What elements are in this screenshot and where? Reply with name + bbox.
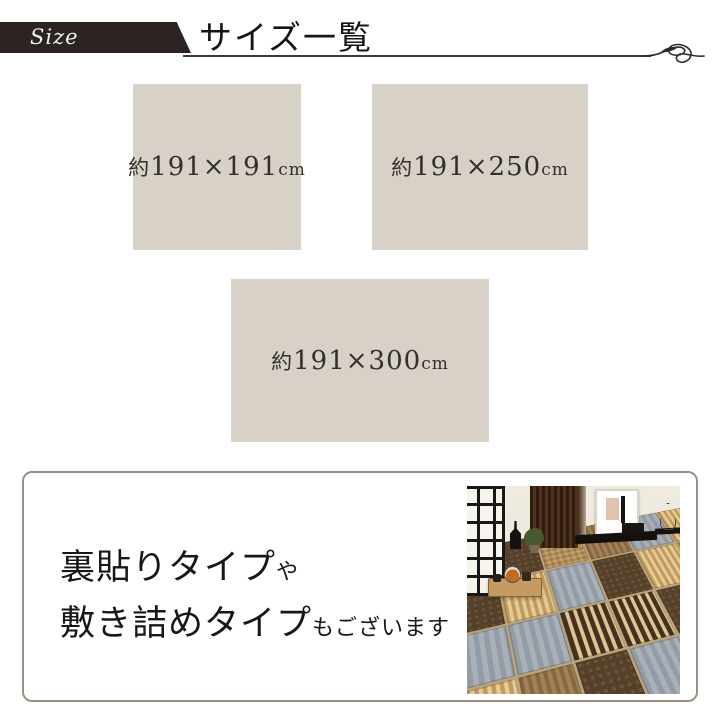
- potted-plant: [524, 528, 544, 546]
- note-text: 裏貼りタイプや 敷き詰めタイプもございます: [60, 543, 450, 655]
- size-variation-page: Size Variation サイズ一覧 約191×191cm 約191×250…: [0, 0, 720, 720]
- size-dims: 191×250: [413, 152, 541, 182]
- art-black-bar: [621, 496, 625, 523]
- size-unit: cm: [278, 160, 306, 180]
- note-line-1: 裏貼りタイプや: [60, 543, 450, 599]
- size-unit: cm: [541, 160, 569, 180]
- note-line1-main: 裏貼りタイプ: [60, 548, 276, 588]
- room-photo: [467, 486, 680, 694]
- size-label: 約191×300cm: [271, 346, 449, 376]
- flourish-icon: [643, 36, 705, 70]
- size-label: 約191×250cm: [391, 152, 569, 182]
- note-line-2: 敷き詰めタイプもございます: [60, 599, 450, 655]
- size-prefix: 約: [128, 156, 150, 180]
- art-brush-patch: [606, 498, 619, 520]
- size-swatch-191x250: 約191×250cm: [372, 84, 588, 250]
- tea-cup: [493, 574, 501, 582]
- tea-cup: [522, 572, 531, 581]
- note-line2-small: もございます: [312, 616, 450, 641]
- size-unit: cm: [421, 354, 449, 374]
- size-prefix: 約: [271, 350, 293, 374]
- teapot: [504, 566, 521, 583]
- floor-vase: [510, 521, 521, 549]
- other-types-note-box: 裏貼りタイプや 敷き詰めタイプもございます: [22, 471, 698, 702]
- size-dims: 191×300: [293, 346, 421, 376]
- note-line2-main: 敷き詰めタイプ: [60, 604, 312, 644]
- size-dims: 191×191: [150, 152, 278, 182]
- page-title: サイズ一覧: [199, 21, 373, 55]
- note-line1-small: や: [276, 560, 299, 585]
- size-prefix: 約: [391, 156, 413, 180]
- size-swatch-191x300: 約191×300cm: [231, 279, 489, 442]
- size-label: 約191×191cm: [128, 152, 306, 182]
- title-underline: [183, 55, 651, 57]
- ribbon-label: Size Variation: [0, 22, 191, 84]
- shelf-boxes: [622, 523, 644, 533]
- size-swatch-191x191: 約191×191cm: [133, 84, 301, 250]
- size-variation-ribbon: Size Variation: [0, 22, 191, 53]
